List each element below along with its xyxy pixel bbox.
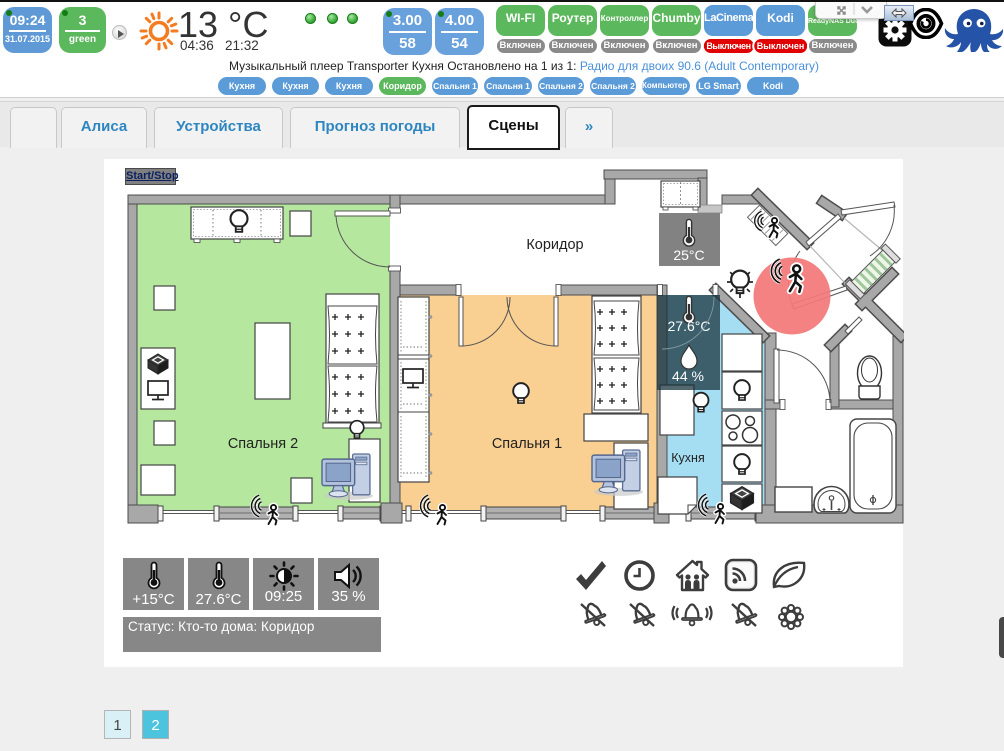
svg-text:44 %: 44 % bbox=[672, 368, 704, 384]
svg-text:Кухня: Кухня bbox=[671, 451, 704, 465]
svg-text:Спальня 1: Спальня 1 bbox=[492, 436, 562, 452]
svg-text:Спальня 2: Спальня 2 bbox=[228, 436, 298, 452]
svg-text:25°C: 25°C bbox=[673, 247, 704, 263]
svg-text:Коридор: Коридор bbox=[526, 237, 583, 253]
svg-text:27.6°C: 27.6°C bbox=[668, 318, 711, 334]
